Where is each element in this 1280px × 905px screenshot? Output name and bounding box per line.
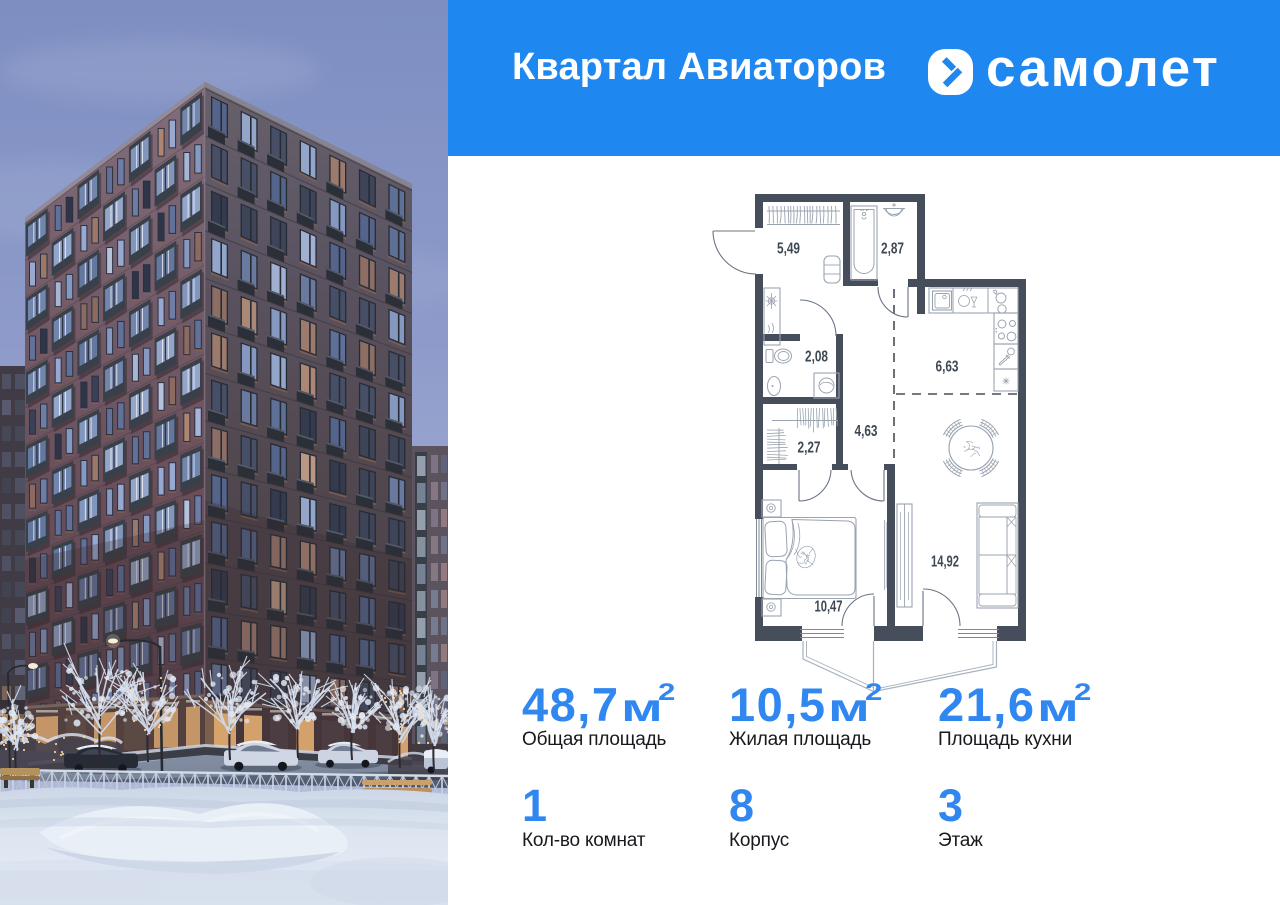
svg-text:2,08: 2,08 (805, 349, 828, 366)
svg-text:10,47: 10,47 (815, 599, 843, 616)
svg-text:2,87: 2,87 (881, 241, 904, 258)
svg-text:4,63: 4,63 (855, 423, 878, 440)
svg-text:5,49: 5,49 (777, 241, 800, 258)
svg-text:6,63: 6,63 (936, 359, 959, 376)
svg-text:14,92: 14,92 (931, 554, 959, 571)
svg-text:2,27: 2,27 (798, 440, 821, 457)
